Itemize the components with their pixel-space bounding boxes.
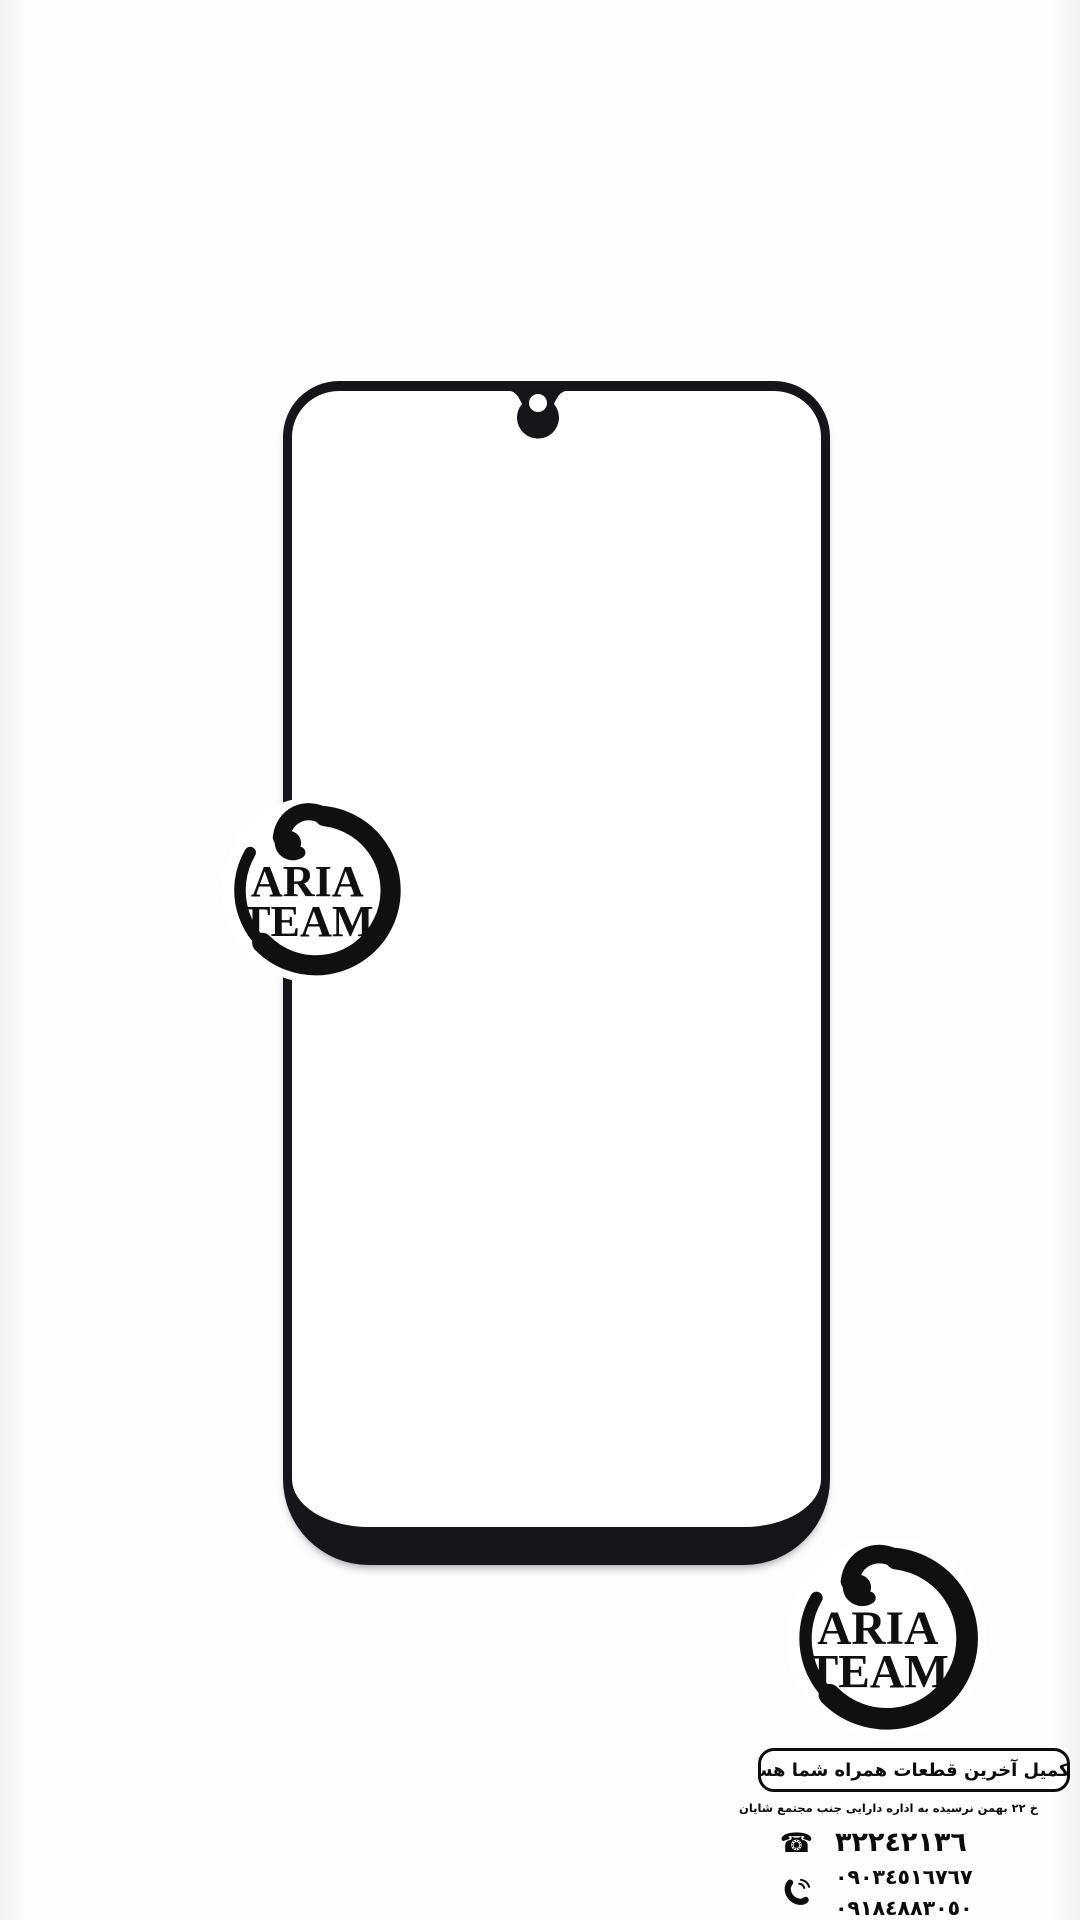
logo-word-team: TEAM [807, 1646, 949, 1698]
address-row: خ ۲۲ بهمن نرسیده به اداره دارایی جنب مجت… [758, 1796, 1070, 1820]
camera-hole-icon [529, 394, 547, 412]
tagline-box: در تکمیل آخرین قطعات همراه شما هستیم [758, 1748, 1070, 1792]
spiral-logo-icon: ARIA TEAM [219, 794, 411, 986]
tagline-text: در تکمیل آخرین قطعات همراه شما هستیم [758, 1760, 1070, 1781]
phone-handset-icon [782, 1878, 812, 1908]
landline-number: ٣٢٢٤٢١٣٦ [835, 1828, 967, 1858]
aria-team-watermark-logo: ARIA TEAM [219, 794, 411, 986]
mobile-number-1: ٠٩٠٣٤٥١٦٧٦٧ [835, 1862, 973, 1893]
mobile-rows: ٠٩٠٣٤٥١٦٧٦٧ ٠٩١٨٤٨٨٣٠٥٠ [758, 1862, 1070, 1920]
aria-team-brand-logo: ARIA TEAM [783, 1535, 989, 1741]
telephone-icon: ☎ [780, 1830, 814, 1857]
spiral-logo-icon: ARIA TEAM [783, 1535, 989, 1741]
spiral-ball [845, 1575, 871, 1601]
mobile-number-2: ٠٩١٨٤٨٨٣٠٥٠ [835, 1893, 973, 1920]
address-text: خ ۲۲ بهمن نرسیده به اداره دارایی جنب مجت… [739, 1801, 1038, 1815]
logo-word-team: TEAM [241, 897, 373, 946]
contact-block: در تکمیل آخرین قطعات همراه شما هستیم خ ۲… [758, 1748, 1070, 1920]
landline-row: ☎ ٣٢٢٤٢١٣٦ [758, 1828, 1070, 1858]
waterdrop-notch [493, 390, 583, 442]
mobile-number-stack: ٠٩٠٣٤٥١٦٧٦٧ ٠٩١٨٤٨٨٣٠٥٠ [835, 1862, 973, 1920]
ad-canvas: ARIA TEAM ARIA TEAM در تکمیل آخرین قطعات… [0, 0, 1080, 1920]
spiral-ball [277, 831, 301, 855]
